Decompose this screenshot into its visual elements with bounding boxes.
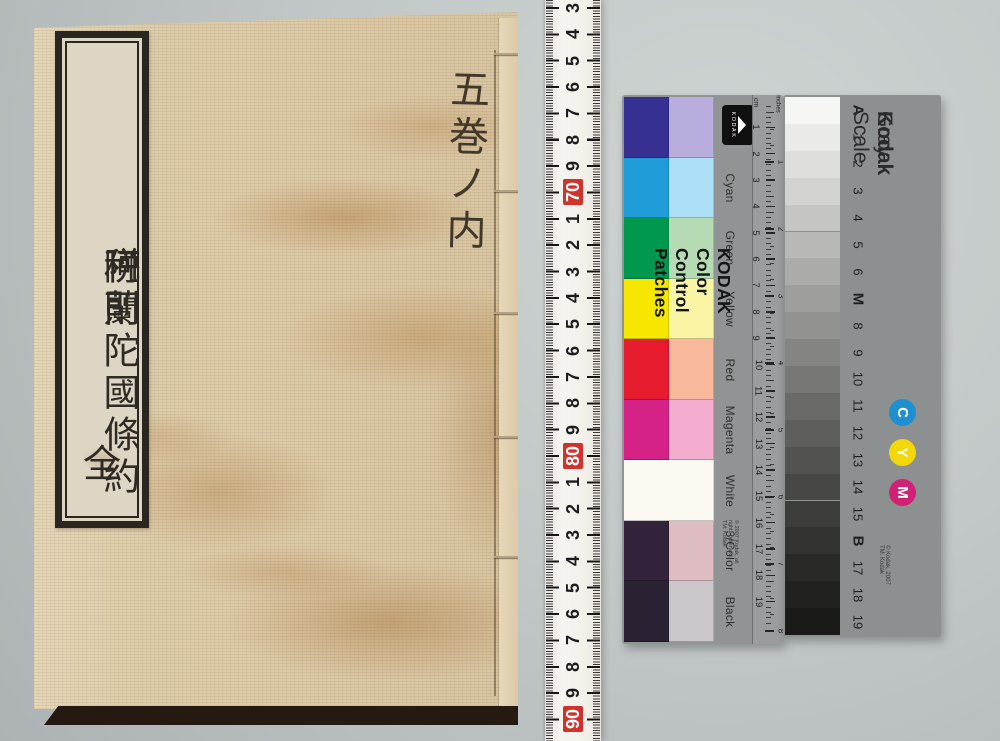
cym-circle-c: C [889,399,916,426]
cym-circle-y: Y [889,439,916,466]
cm-minor-tick [766,486,771,487]
inch-minor-tick [770,279,775,280]
title-slip-zen: 全 [67,433,137,488]
cm-minor-tick [766,280,771,281]
tape-number: 1 [564,477,582,487]
tape-number: 6 [564,346,582,356]
cm-minor-tick [766,502,771,503]
cm-minor-tick [766,422,771,423]
cm-minor-tick [766,533,771,534]
cym-letter: M [894,486,911,499]
tape-number: 9 [564,161,582,171]
cm-minor-tick [766,185,771,186]
cm-number: 17 [753,544,764,555]
title-slip-inner-border: 阿蘭陀國條約並税則 全 [65,41,139,518]
cm-minor-tick [766,122,771,123]
cm-minor-tick [766,375,771,376]
color-name-label: White [723,475,737,507]
cm-minor-tick [766,528,771,529]
binding-stitch [494,436,518,438]
color-name-label: Magenta [723,406,737,455]
cm-minor-tick [766,559,771,560]
tape-number: 3 [564,266,582,276]
inch-minor-tick [770,447,775,448]
cm-number: 6 [750,256,761,261]
cm-minor-tick [766,301,771,302]
cm-number: 14 [753,465,764,476]
inch-tick [765,161,774,163]
tape-number: 4 [564,29,582,39]
binding-stitch [494,190,518,192]
cm-number: 5 [750,230,761,235]
tape-number-decade: 70 [563,179,583,205]
cm-minor-tick [766,270,771,271]
cm-minor-tick [766,328,771,329]
inch-minor-tick [770,531,775,532]
cm-number: 10 [753,359,764,370]
cm-minor-tick [766,359,771,360]
tape-number: 5 [564,583,582,593]
cym-letter: C [894,407,911,418]
photo-stage: 阿蘭陀國條約並税則 全 五巻ノ内 34567897012345678980123… [0,0,1000,741]
kodak-logo-text: KODAK [730,112,736,139]
cm-minor-tick [766,465,771,466]
title-slip-text: 阿蘭陀國條約並税則 [67,57,137,437]
inch-minor-tick [770,614,775,615]
color-card-ruler: cm inches 123456789101112131415161718191… [752,95,783,644]
cm-tick [766,390,775,392]
cm-minor-tick [766,407,771,408]
cm-minor-tick [766,401,771,402]
cm-minor-tick [766,459,771,460]
cm-minor-tick [766,343,771,344]
cm-tick [766,258,775,260]
cm-minor-tick [766,623,771,624]
inch-minor-tick [770,179,775,180]
cm-tick [766,153,775,155]
cm-number: 8 [750,309,761,314]
cm-minor-tick [766,164,771,165]
cm-minor-tick [766,106,771,107]
inch-minor-tick [770,413,775,414]
binding-stitch [494,53,518,55]
tape-ruler: 3456789701234567898012345678990 [545,0,601,741]
inch-minor-tick [770,145,775,146]
cm-minor-tick [766,170,771,171]
cym-circle-m: M [889,479,916,506]
cm-tick [766,522,775,524]
cm-minor-tick [766,175,771,176]
tape-number: 7 [564,108,582,118]
inch-minor-tick [770,397,775,398]
inch-minor-tick [770,464,775,465]
cm-tick [766,443,775,445]
binding-stitch [494,312,518,314]
cm-minor-tick [766,138,771,139]
cm-minor-tick [766,349,771,350]
inch-tick [765,496,774,498]
cm-number: 16 [753,517,764,528]
cm-minor-tick [766,449,771,450]
cm-minor-tick [766,307,771,308]
tape-number: 2 [564,504,582,514]
cm-minor-tick [766,544,771,545]
inch-minor-tick [770,581,775,582]
cm-minor-tick [766,586,771,587]
cm-minor-tick [766,386,771,387]
tape-number: 8 [564,662,582,672]
cm-minor-tick [766,117,771,118]
tape-numbers: 3456789701234567898012345678990 [545,0,601,741]
inch-minor-tick [770,263,775,264]
tape-number: 3 [564,530,582,540]
cm-minor-tick [766,243,771,244]
cm-minor-tick [766,201,771,202]
book-cover: 阿蘭陀國條約並税則 全 五巻ノ内 [34,12,518,709]
cm-minor-tick [766,143,771,144]
cm-tick [766,469,775,471]
cm-minor-tick [766,570,771,571]
cm-minor-tick [766,607,771,608]
inch-minor-tick [770,514,775,515]
inch-minor-tick [770,346,775,347]
inch-minor-tick [770,246,775,247]
cm-minor-tick [766,133,771,134]
cm-minor-tick [766,612,771,613]
inch-tick [765,429,774,431]
color-card-copyright: © 2007 Kodak, all rights reserved. TM: K… [721,520,739,564]
cm-tick [766,232,775,234]
cm-minor-tick [766,517,771,518]
cm-minor-tick [766,507,771,508]
cm-minor-tick [766,291,771,292]
cm-minor-tick [766,275,771,276]
cm-tick [766,206,775,208]
cm-minor-tick [766,222,771,223]
binding-thread [494,50,496,696]
tape-number: 3 [564,3,582,13]
title-slip: 阿蘭陀國條約並税則 全 [55,31,149,528]
cm-minor-tick [766,475,771,476]
cm-minor-tick [766,317,771,318]
cm-minor-tick [766,238,771,239]
book-bottom-edge [44,706,518,725]
cm-minor-tick [766,148,771,149]
tape-number: 7 [564,635,582,645]
cm-minor-tick [766,322,771,323]
kodak-color-control-card: BlueCyanGreenYellowRedMagentaWhite3/Colo… [622,95,783,644]
tape-number: 6 [564,609,582,619]
cm-tick [766,601,775,603]
inch-minor-tick [770,598,775,599]
tape-number: 2 [564,240,582,250]
inch-tick [765,362,774,364]
cm-number: 4 [750,204,761,209]
cm-tick [766,575,775,577]
inch-minor-tick [770,380,775,381]
cm-minor-tick [766,333,771,334]
cm-number: 7 [750,283,761,288]
tape-number: 8 [564,398,582,408]
color-card-ruler-ticks: 1234567891011121314151617181912345678 [753,95,783,644]
tape-number: 4 [564,556,582,566]
inch-minor-tick [770,112,775,113]
cm-number: 18 [753,570,764,581]
color-name-label: Black [723,596,737,627]
cm-minor-tick [766,565,771,566]
cm-minor-tick [766,370,771,371]
cm-minor-tick [766,438,771,439]
book: 阿蘭陀國條約並税則 全 五巻ノ内 [34,12,518,725]
cm-tick [766,337,775,339]
gray-scale-copyright: © Kodak, 2007 TM: Kodak [878,545,890,596]
book-page-edge [498,18,518,708]
cym-letter: Y [894,447,911,457]
binding-stitch [494,556,518,558]
tape-number: 9 [564,425,582,435]
inch-minor-tick [770,196,775,197]
cm-minor-tick [766,254,771,255]
inch-minor-tick [770,330,775,331]
tape-number: 5 [564,56,582,66]
cm-number: 13 [753,438,764,449]
inch-minor-tick [770,480,775,481]
tape-number-decade: 90 [563,706,583,732]
cm-minor-tick [766,617,771,618]
cm-number: 2 [750,151,761,156]
tape-number-decade: 80 [563,443,583,469]
cm-tick [766,548,775,550]
tape-number: 8 [564,135,582,145]
tape-number: 7 [564,372,582,382]
inch-tick [765,630,774,632]
cm-tick [766,364,775,366]
inch-tick [765,563,774,565]
cm-minor-tick [766,249,771,250]
cm-minor-tick [766,491,771,492]
tape-number: 6 [564,82,582,92]
cm-tick [766,416,775,418]
cm-number: 19 [753,596,764,607]
color-name-label: Red [723,358,737,381]
inch-minor-tick [770,313,775,314]
cm-minor-tick [766,554,771,555]
inch-minor-tick [770,129,775,130]
tape-number: 5 [564,319,582,329]
cm-minor-tick [766,354,771,355]
cm-minor-tick [766,433,771,434]
tape-number: 1 [564,214,582,224]
inch-tick [765,228,774,230]
cm-minor-tick [766,159,771,160]
cm-number: 3 [750,177,761,182]
cm-number: 11 [752,386,763,396]
inch-tick [765,295,774,297]
cm-minor-tick [766,217,771,218]
cm-number: 15 [753,491,764,502]
inch-minor-tick [770,212,775,213]
title-main-2: 税則 [100,247,137,331]
cm-minor-tick [766,538,771,539]
cm-minor-tick [766,454,771,455]
color-name-label: Cyan [723,173,737,202]
cm-number: 1 [750,125,761,130]
cm-minor-tick [766,264,771,265]
tape-number: 9 [564,688,582,698]
inch-minor-tick [770,547,775,548]
kodak-gray-scale-card: A123456M89101112131415B171819 Kodak Gray… [783,95,941,637]
cm-minor-tick [766,591,771,592]
cm-minor-tick [766,191,771,192]
handwritten-volume-note: 五巻ノ内 [429,67,486,278]
cm-tick [766,285,775,287]
cm-number: 12 [753,412,764,423]
cym-circles: CYM [783,95,941,637]
tape-number: 4 [564,293,582,303]
color-card-title: KODAK Color Control Patches [650,248,734,318]
cm-number: 9 [750,335,761,340]
